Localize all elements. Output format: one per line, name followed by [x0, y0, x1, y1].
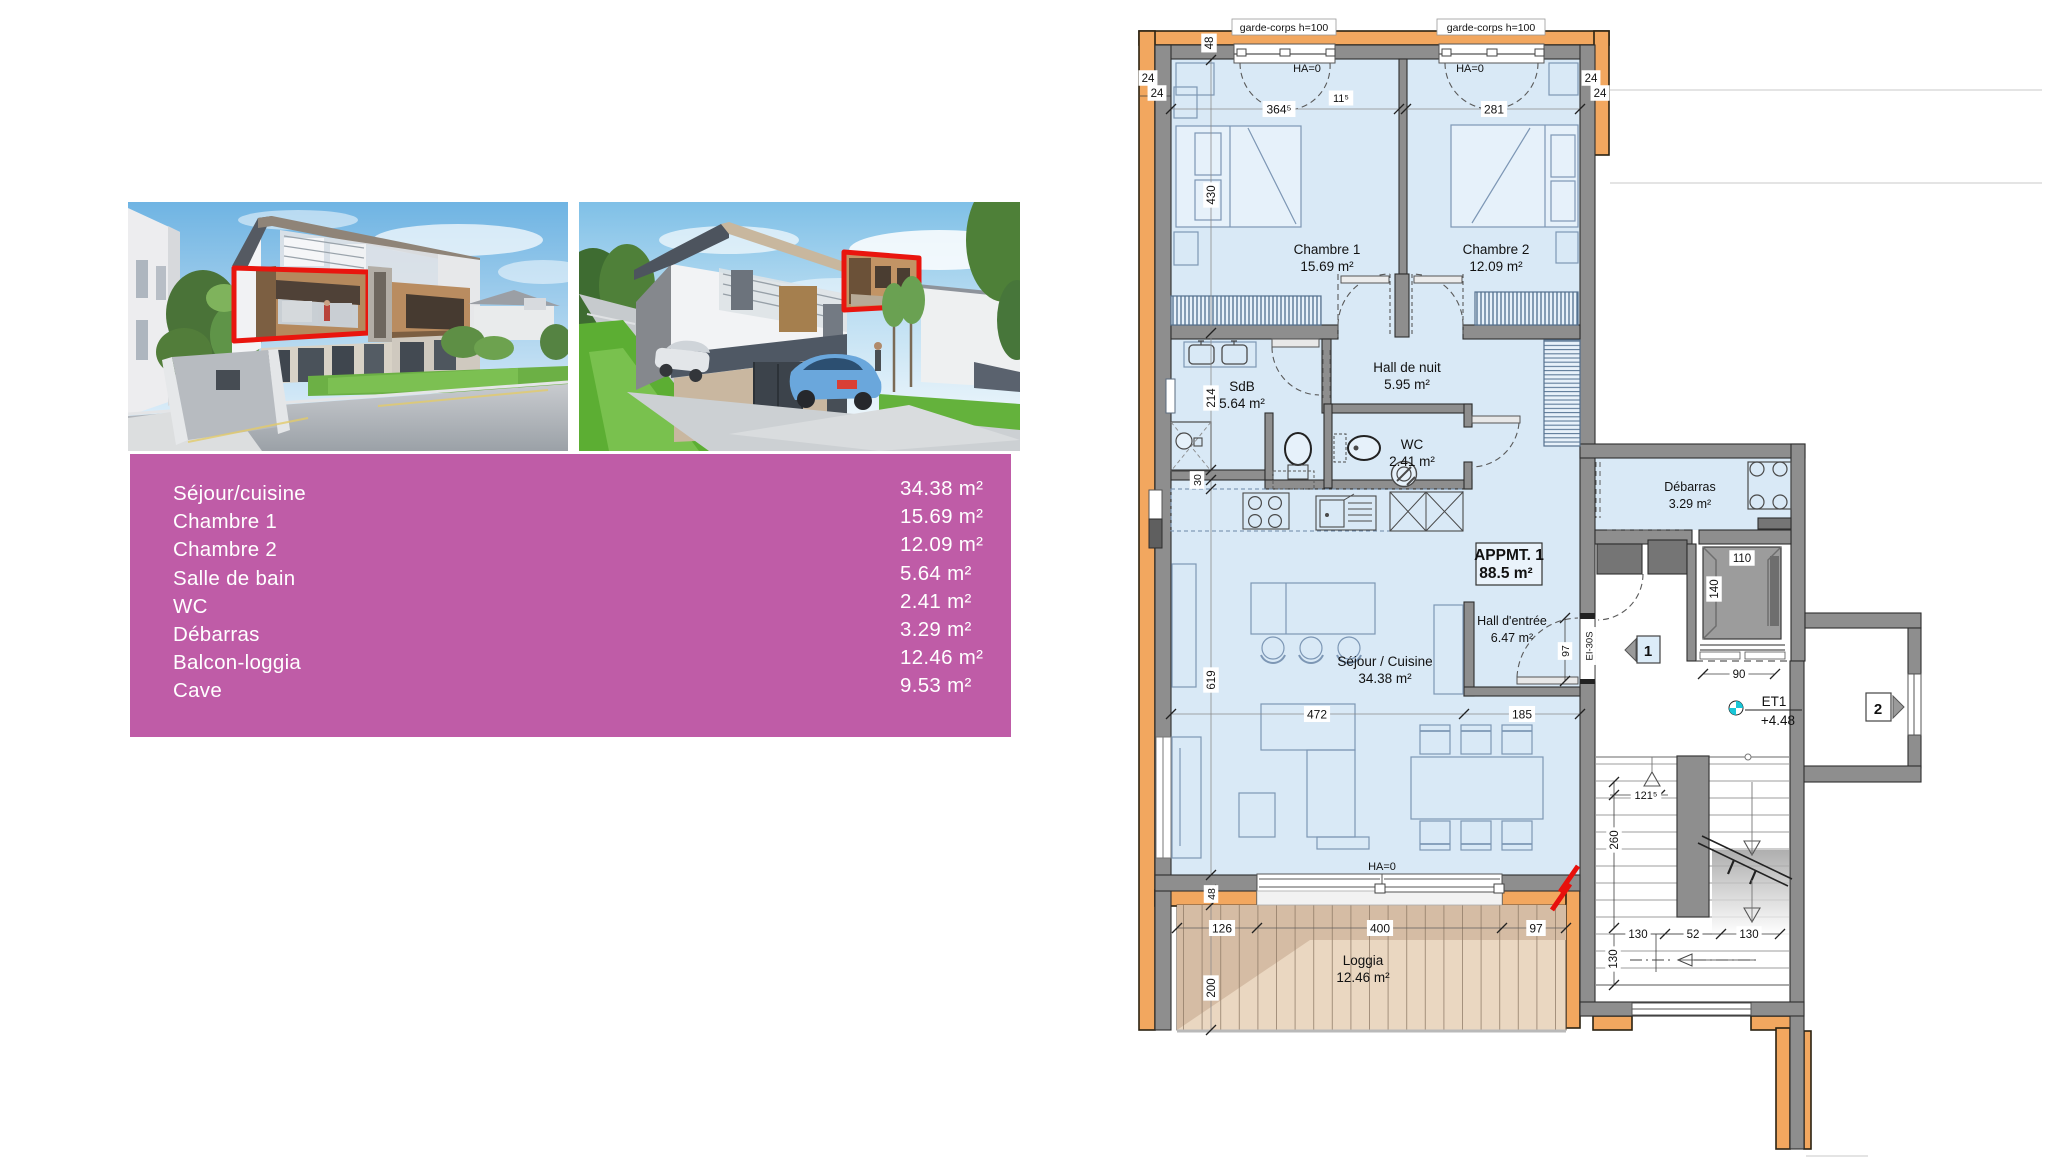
svg-text:97: 97	[1560, 645, 1572, 657]
svg-text:12.46 m²: 12.46 m²	[1336, 970, 1390, 985]
svg-text:472: 472	[1307, 707, 1327, 721]
svg-text:48: 48	[1204, 37, 1216, 50]
svg-text:ET1: ET1	[1762, 694, 1787, 709]
svg-text:130: 130	[1628, 929, 1647, 941]
svg-text:APPMT. 1: APPMT. 1	[1474, 547, 1544, 564]
svg-text:12.09 m²: 12.09 m²	[1469, 259, 1523, 274]
svg-text:110: 110	[1733, 553, 1751, 565]
svg-text:garde-corps h=100: garde-corps h=100	[1447, 22, 1536, 34]
svg-text:WC: WC	[1401, 437, 1424, 452]
svg-text:200: 200	[1206, 978, 1218, 997]
svg-text:52: 52	[1687, 929, 1700, 941]
svg-text:24: 24	[1142, 73, 1155, 85]
svg-text:185: 185	[1512, 707, 1532, 721]
svg-text:2.41 m²: 2.41 m²	[1389, 454, 1435, 469]
svg-text:HA=0: HA=0	[1456, 63, 1484, 75]
svg-text:24: 24	[1585, 73, 1598, 85]
svg-text:130: 130	[1608, 949, 1620, 968]
svg-text:24: 24	[1151, 88, 1164, 100]
svg-text:Séjour / Cuisine: Séjour / Cuisine	[1337, 654, 1432, 669]
svg-text:281: 281	[1484, 102, 1504, 116]
svg-text:260: 260	[1609, 830, 1621, 849]
svg-text:364⁵: 364⁵	[1267, 102, 1292, 116]
svg-text:30: 30	[1192, 474, 1204, 486]
svg-text:126: 126	[1212, 921, 1232, 935]
svg-text:6.47 m²: 6.47 m²	[1491, 631, 1533, 645]
svg-text:3.29 m²: 3.29 m²	[1669, 497, 1711, 511]
svg-text:121⁵: 121⁵	[1635, 790, 1658, 802]
svg-text:Chambre 2: Chambre 2	[1463, 242, 1530, 257]
svg-text:1: 1	[1644, 643, 1652, 660]
svg-text:90: 90	[1733, 669, 1746, 681]
svg-text:140: 140	[1709, 579, 1721, 598]
svg-text:214: 214	[1206, 388, 1218, 408]
svg-text:+4.48: +4.48	[1761, 713, 1795, 728]
svg-text:5.64 m²: 5.64 m²	[1219, 396, 1265, 411]
svg-text:EI-30S: EI-30S	[1584, 631, 1595, 660]
svg-text:48: 48	[1206, 888, 1218, 900]
svg-text:24: 24	[1594, 88, 1607, 100]
svg-text:Loggia: Loggia	[1343, 953, 1384, 968]
svg-text:Hall d'entrée: Hall d'entrée	[1477, 614, 1547, 628]
svg-text:5.95 m²: 5.95 m²	[1384, 377, 1430, 392]
svg-text:SdB: SdB	[1229, 379, 1255, 394]
svg-text:130: 130	[1739, 929, 1758, 941]
svg-text:34.38 m²: 34.38 m²	[1358, 671, 1412, 686]
svg-text:Chambre 1: Chambre 1	[1294, 242, 1361, 257]
svg-text:400: 400	[1370, 921, 1390, 935]
svg-text:Hall de nuit: Hall de nuit	[1373, 360, 1441, 375]
svg-text:2: 2	[1874, 701, 1882, 718]
svg-text:15.69 m²: 15.69 m²	[1300, 259, 1354, 274]
svg-text:619: 619	[1206, 670, 1218, 689]
svg-text:88.5 m²: 88.5 m²	[1479, 565, 1532, 582]
svg-text:HA=0: HA=0	[1368, 861, 1396, 873]
svg-text:HA=0: HA=0	[1293, 63, 1321, 75]
svg-text:97: 97	[1529, 921, 1543, 935]
svg-text:garde-corps h=100: garde-corps h=100	[1240, 22, 1329, 34]
svg-text:Débarras: Débarras	[1664, 480, 1715, 494]
svg-text:430: 430	[1206, 185, 1218, 204]
svg-text:11⁵: 11⁵	[1333, 93, 1349, 105]
